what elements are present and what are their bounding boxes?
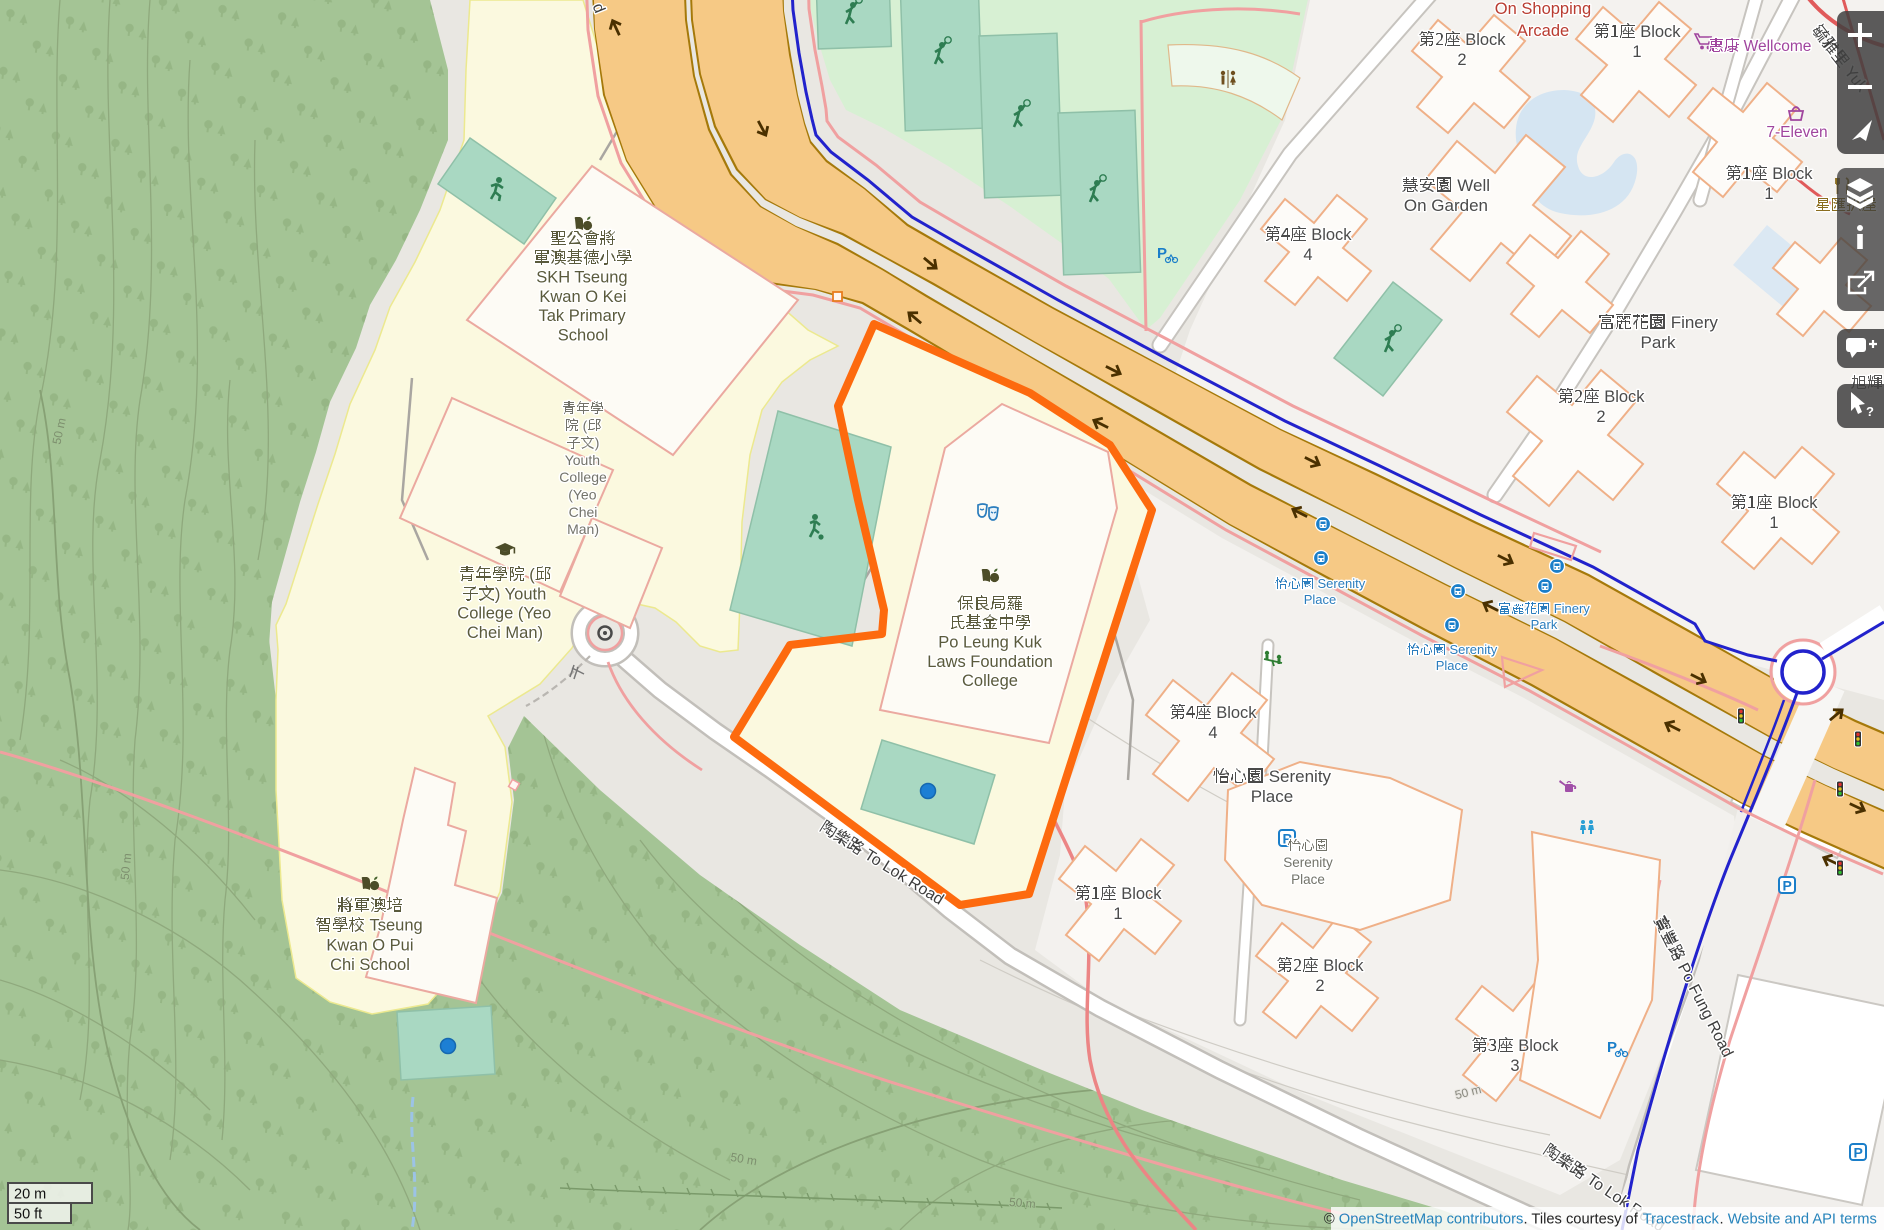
svg-text:Block: Block [1518, 1037, 1559, 1055]
svg-text:Finery: Finery [1671, 313, 1719, 332]
svg-text:Place: Place [1291, 872, 1325, 887]
svg-text:P: P [1783, 878, 1792, 894]
svg-text:Chi School: Chi School [330, 956, 410, 974]
svg-text:Block: Block [1465, 31, 1506, 49]
svg-text:2: 2 [1596, 408, 1605, 426]
svg-text:Block: Block [1640, 23, 1681, 41]
svg-text:Arcade: Arcade [1517, 22, 1569, 40]
svg-text:) Youth: ) Youth [495, 585, 546, 603]
svg-text:Tseung: Tseung [370, 917, 423, 935]
svg-text:College (Yeo: College (Yeo [457, 605, 551, 623]
svg-text:Block: Block [1216, 704, 1257, 722]
svg-text:Block: Block [1311, 226, 1352, 244]
svg-text:Tak Primary: Tak Primary [539, 307, 627, 325]
svg-text:Place: Place [1304, 592, 1337, 607]
svg-text:Laws Foundation: Laws Foundation [927, 653, 1053, 671]
svg-text:On Garden: On Garden [1404, 196, 1488, 215]
svg-text:(: ( [529, 566, 535, 584]
svg-text:Serenity: Serenity [1269, 767, 1332, 786]
svg-text:Park: Park [1641, 333, 1676, 352]
svg-text:(: ( [583, 417, 588, 433]
svg-text:SKH Tseung: SKH Tseung [536, 269, 627, 287]
svg-text:2: 2 [1457, 51, 1466, 69]
svg-text:1: 1 [1632, 43, 1641, 61]
svg-text:Youth: Youth [565, 452, 600, 468]
svg-text:College: College [962, 672, 1018, 690]
svg-text:Finery: Finery [1554, 601, 1591, 616]
svg-text:50 ft: 50 ft [14, 1207, 42, 1223]
svg-text:Chei Man): Chei Man) [467, 624, 543, 642]
svg-text:4: 4 [1208, 724, 1217, 742]
svg-text:Chei: Chei [569, 504, 598, 520]
svg-text:7-Eleven: 7-Eleven [1766, 124, 1827, 141]
svg-text:Block: Block [1777, 494, 1818, 512]
svg-text:1: 1 [1764, 185, 1773, 203]
svg-text:Well: Well [1457, 176, 1490, 195]
svg-text:Park: Park [1531, 617, 1558, 632]
svg-text:Place: Place [1436, 658, 1469, 673]
svg-text:1: 1 [1113, 905, 1122, 923]
svg-text:50 m: 50 m [1008, 1195, 1036, 1211]
svg-text:(Yeo: (Yeo [568, 487, 597, 503]
svg-text:4: 4 [1303, 246, 1312, 264]
svg-text:Man): Man) [567, 521, 599, 537]
svg-text:Block: Block [1772, 165, 1813, 183]
svg-text:Place: Place [1251, 787, 1294, 806]
svg-text:Kwan O Kei: Kwan O Kei [539, 288, 626, 306]
svg-text:Block: Block [1323, 957, 1364, 975]
svg-text:Po Leung Kuk: Po Leung Kuk [938, 634, 1042, 652]
svg-text:P: P [1854, 1145, 1863, 1161]
svg-text:?: ? [1866, 404, 1874, 419]
svg-text:2: 2 [1315, 977, 1324, 995]
svg-text:1: 1 [1769, 514, 1778, 532]
svg-text:On Shopping: On Shopping [1495, 0, 1591, 18]
svg-text:School: School [558, 327, 608, 345]
svg-text:20 m: 20 m [14, 1187, 46, 1203]
svg-text:College: College [559, 469, 607, 485]
svg-text:Serenity: Serenity [1283, 855, 1333, 870]
svg-text:): ) [595, 435, 600, 451]
svg-text:Wellcome: Wellcome [1744, 38, 1812, 55]
svg-text:Kwan O Pui: Kwan O Pui [326, 936, 413, 954]
svg-text:Serenity: Serenity [1450, 642, 1498, 657]
svg-text:3: 3 [1510, 1057, 1519, 1075]
svg-text:Block: Block [1604, 388, 1645, 406]
svg-text:Block: Block [1121, 885, 1162, 903]
svg-text:50 m: 50 m [118, 853, 135, 881]
svg-text:© OpenStreetMap contributors.: © OpenStreetMap contributors. Tiles cour… [1324, 1212, 1877, 1228]
svg-text:Serenity: Serenity [1318, 576, 1366, 591]
